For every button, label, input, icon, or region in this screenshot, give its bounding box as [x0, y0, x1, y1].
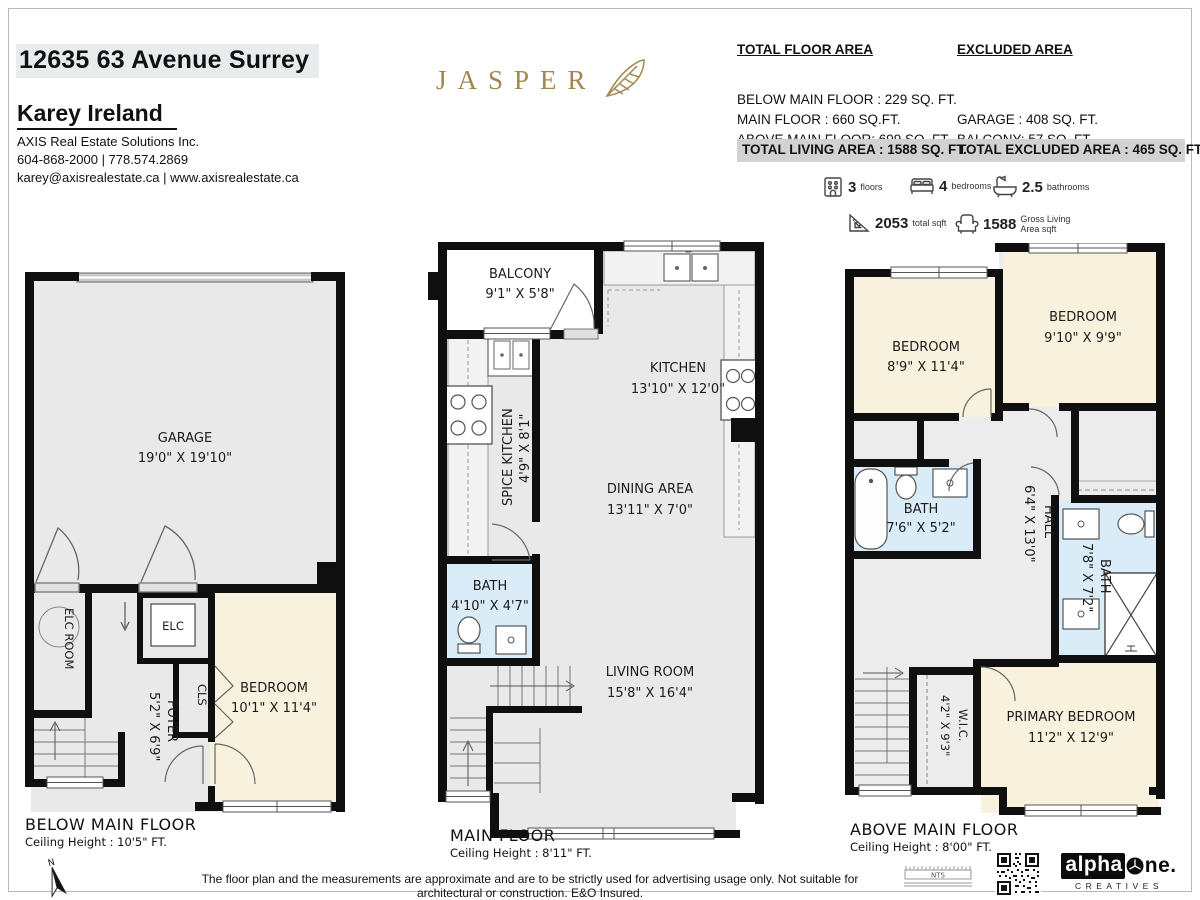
- excluded-area-title: EXCLUDED AREA: [957, 42, 1073, 57]
- cls-label: CLS: [195, 684, 209, 706]
- main-bath-label: BATH: [473, 579, 508, 594]
- bedroom-a-dims: 8'9" X 11'4": [887, 360, 965, 375]
- total-living-area: TOTAL LIVING AREA : 1588 SQ. FT.: [742, 142, 967, 157]
- stat-gross-living: 1588 Gross Living Area sqft: [955, 212, 1070, 236]
- total-sqft-label: total sqft: [912, 218, 946, 228]
- area-below-main: BELOW MAIN FLOOR : 229 SQ. FT.: [737, 92, 957, 107]
- living-label: LIVING ROOM: [606, 665, 694, 680]
- jasper-logo: JASPER: [436, 56, 647, 105]
- foyer-label: FOYER: [164, 700, 179, 742]
- building-icon: [822, 175, 844, 199]
- stat-bedrooms: 4 bedrooms: [909, 175, 991, 197]
- brokerage-name: AXIS Real Estate Solutions Inc.: [17, 134, 199, 149]
- gross-living-label-line1: Gross Living: [1020, 214, 1070, 224]
- area-main: MAIN FLOOR : 660 SQ.FT.: [737, 112, 901, 127]
- dining-dims: 13'11" X 7'0": [607, 503, 693, 518]
- totals-bar: TOTAL LIVING AREA : 1588 SQ. FT. TOTAL E…: [737, 139, 1185, 162]
- primary-dims: 11'2" X 12'9": [1028, 731, 1114, 746]
- garage-door: [77, 273, 313, 282]
- bedroom-a-label: BEDROOM: [892, 340, 960, 355]
- alphaone-alpha: alpha: [1061, 853, 1124, 879]
- nts-scale: NTS: [900, 862, 980, 895]
- below-main-floor-plan: GARAGE 19'0" X 19'10" ELC ROOM ELC FOYER…: [25, 272, 345, 820]
- north-arrow-icon: N: [40, 855, 70, 900]
- bedrooms-value: 4: [939, 178, 947, 195]
- gross-living-value: 1588: [983, 216, 1016, 233]
- above-main-floor-label: ABOVE MAIN FLOOR Ceiling Height : 8'00" …: [850, 820, 1018, 854]
- bedroom-b-dims: 9'10" X 9'9": [1044, 331, 1122, 346]
- alphaone-wordmark: alpha ne.: [1058, 853, 1180, 879]
- below-main-floor-label: BELOW MAIN FLOOR Ceiling Height : 10'5" …: [25, 815, 196, 849]
- ceiling-height: Ceiling Height : 10'5" FT.: [25, 835, 196, 849]
- elc-label: ELC: [162, 619, 184, 633]
- bath-a-label: BATH: [904, 502, 939, 517]
- ceiling-height: Ceiling Height : 8'00" FT.: [850, 840, 1018, 854]
- primary-label: PRIMARY BEDROOM: [1007, 710, 1136, 725]
- property-address: 12635 63 Avenue Surrey: [16, 44, 319, 78]
- armchair-icon: [955, 212, 979, 236]
- aperture-icon: [1126, 857, 1144, 875]
- bedroom-dims: 10'1" X 11'4": [231, 701, 317, 716]
- bedroom-label: BEDROOM: [240, 681, 308, 696]
- total-floor-area-title: TOTAL FLOOR AREA: [737, 42, 873, 57]
- garage-dims: 19'0" X 19'10": [138, 451, 232, 466]
- floors-label: floors: [860, 182, 882, 192]
- bed-icon: [909, 175, 935, 197]
- agent-name: Karey Ireland: [17, 100, 177, 130]
- agent-contact: karey@axisrealestate.ca | www.axisreales…: [17, 170, 299, 185]
- setsquare-icon: [847, 212, 871, 234]
- gross-living-label-line2: Area sqft: [1020, 224, 1056, 234]
- area-garage: GARAGE : 408 SQ. FT.: [957, 112, 1098, 127]
- floors-value: 3: [848, 179, 856, 196]
- ceiling-height: Ceiling Height : 8'11" FT.: [450, 846, 592, 860]
- property-stats: 3 floors 4 bedrooms: [737, 168, 1185, 243]
- bath-b-dims: 7'8" X 7'2": [1079, 543, 1094, 612]
- bedrooms-label: bedrooms: [951, 181, 991, 191]
- alphaone-logo: alpha ne. CREATIVES: [1058, 853, 1180, 891]
- bath-b-label: BATH: [1097, 559, 1112, 594]
- spice-kitchen-dims: 4'9" X 8'1": [518, 414, 533, 483]
- main-floor-plan: BALCONY 9'1" X 5'8" KITCHEN 13'10" X 12'…: [428, 238, 768, 846]
- floorplan-flyer: 12635 63 Avenue Surrey Karey Ireland AXI…: [0, 0, 1200, 900]
- disclaimer-text: The floor plan and the measurements are …: [170, 872, 890, 900]
- above-main-floor-plan: BEDROOM 8'9" X 11'4" BEDROOM 9'10" X 9'9…: [845, 243, 1185, 823]
- nts-label: NTS: [931, 872, 946, 880]
- balcony-label: BALCONY: [489, 267, 551, 282]
- stat-total-sqft: 2053 total sqft: [847, 212, 946, 234]
- total-sqft-value: 2053: [875, 215, 908, 232]
- stat-floors: 3 floors: [822, 175, 882, 199]
- north-letter: N: [47, 858, 56, 869]
- hall-label: HALL: [1041, 505, 1056, 539]
- hall-dims: 6'4" X 13'0": [1021, 485, 1036, 563]
- bathrooms-value: 2.5: [1022, 179, 1043, 196]
- bedroom-b-fill: [1003, 249, 1159, 407]
- main-floor-label: MAIN FLOOR Ceiling Height : 8'11" FT.: [450, 826, 592, 860]
- alphaone-ne: ne.: [1145, 854, 1177, 878]
- floor-name: ABOVE MAIN FLOOR: [850, 820, 1018, 839]
- living-dims: 15'8" X 16'4": [607, 686, 693, 701]
- elc-room-label: ELC ROOM: [62, 608, 76, 669]
- wic-dims: 4'2" X 9'3": [938, 695, 952, 756]
- stat-bathrooms: 2.5 bathrooms: [992, 175, 1089, 199]
- wic-label: W.I.C.: [956, 709, 970, 741]
- bath-a-dims: 7'6" X 5'2": [886, 521, 955, 536]
- garage-label: GARAGE: [158, 431, 212, 446]
- bathrooms-label: bathrooms: [1047, 182, 1090, 192]
- alphaone-creatives: CREATIVES: [1058, 881, 1180, 891]
- foyer-dims: 5'2" X 6'9": [146, 692, 161, 761]
- floor-name: BELOW MAIN FLOOR: [25, 815, 196, 834]
- jasper-logo-text: JASPER: [436, 65, 597, 96]
- bedroom-b-label: BEDROOM: [1049, 310, 1117, 325]
- balcony-dims: 9'1" X 5'8": [485, 287, 554, 302]
- floor-name: MAIN FLOOR: [450, 826, 592, 845]
- gross-living-label: Gross Living Area sqft: [1020, 214, 1070, 235]
- agent-phones: 604-868-2000 | 778.574.2869: [17, 152, 188, 167]
- dining-label: DINING AREA: [607, 482, 693, 497]
- bathtub-icon: [992, 175, 1018, 199]
- leaf-icon: [603, 56, 647, 105]
- bedroom-fill: [210, 592, 338, 806]
- kitchen-dims: 13'10" X 12'0": [631, 382, 725, 397]
- total-excluded-area: TOTAL EXCLUDED AREA : 465 SQ. FT.: [958, 142, 1200, 157]
- spice-kitchen-label: SPICE KITCHEN: [501, 408, 516, 506]
- qr-code: [995, 851, 1041, 900]
- kitchen-label: KITCHEN: [650, 361, 706, 376]
- main-bath-dims: 4'10" X 4'7": [451, 599, 529, 614]
